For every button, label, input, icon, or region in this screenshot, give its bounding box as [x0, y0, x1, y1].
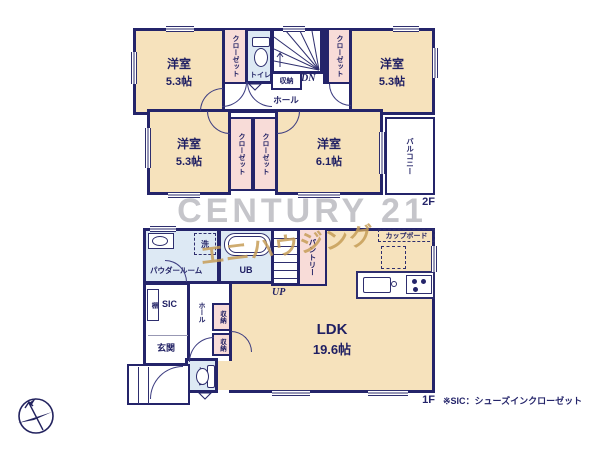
window	[145, 128, 151, 168]
window	[432, 48, 438, 78]
room-label: LDK 19.6帖	[232, 319, 432, 359]
burner-icon	[421, 279, 426, 284]
porch-step-line	[148, 367, 149, 404]
toilet-tank-icon	[252, 37, 270, 47]
stairs-2f	[271, 28, 323, 74]
floor1-label: 1F	[410, 394, 435, 406]
closet-2f-nw: クローゼット	[223, 28, 247, 84]
sink-bowl-icon	[152, 236, 168, 246]
closet-2f-ne: クローゼット	[327, 28, 351, 84]
faucet-icon	[391, 281, 397, 287]
closet-2f-sw: クローゼット	[229, 117, 253, 191]
shoe-shelf: 棚	[147, 289, 159, 321]
floor-patch	[218, 361, 232, 390]
toilet-bowl-icon	[196, 368, 209, 385]
closet-2f-se: クローゼット	[253, 117, 277, 191]
balcony: バルコニー	[385, 117, 435, 195]
sic-entrance-room: SIC 玄関 棚	[143, 282, 190, 366]
door-arc	[222, 82, 247, 107]
toilet-bowl-icon	[254, 48, 268, 67]
kitchen-sink-icon	[363, 277, 391, 293]
stairs-up-label: UP	[272, 287, 285, 298]
room-label: 洋室 5.3帖	[352, 31, 432, 112]
burner-icon	[413, 287, 418, 292]
wall-segment	[229, 109, 277, 113]
storage-1f-upper: 収納	[212, 303, 231, 331]
storage-2f: 収納	[271, 72, 302, 90]
step-line	[148, 335, 188, 336]
vent-mark-icon	[198, 392, 212, 400]
window	[131, 52, 137, 84]
window	[393, 26, 419, 32]
room-2f-bedroom-ne: 洋室 5.3帖	[349, 28, 435, 115]
refrigerator-space	[381, 246, 406, 269]
door-arc	[189, 337, 214, 362]
floorplan-canvas: 洋室 5.3帖 クローゼット トイレ 収納 DN クローゼット 洋室 5.3帖	[0, 0, 600, 450]
winder-stairs-icon	[274, 31, 320, 71]
window	[166, 26, 194, 32]
door-arc	[329, 84, 351, 106]
window	[431, 246, 437, 272]
window	[368, 390, 408, 396]
north-compass-icon	[12, 392, 60, 440]
stairs-down-label: DN	[301, 73, 315, 84]
window	[272, 390, 310, 396]
porch-step-line	[138, 367, 139, 404]
stove-icon	[406, 275, 432, 294]
burner-icon	[412, 279, 417, 284]
balcony-door-window	[379, 132, 385, 174]
toilet-room-2f: トイレ	[245, 28, 273, 84]
storage-1f-lower: 収納	[212, 333, 231, 356]
hall-1f-label: ホール	[196, 302, 206, 323]
vent-mark-icon	[248, 83, 262, 91]
window	[283, 26, 305, 32]
sic-footnote: ※SIC：シューズインクローゼット	[443, 394, 582, 407]
